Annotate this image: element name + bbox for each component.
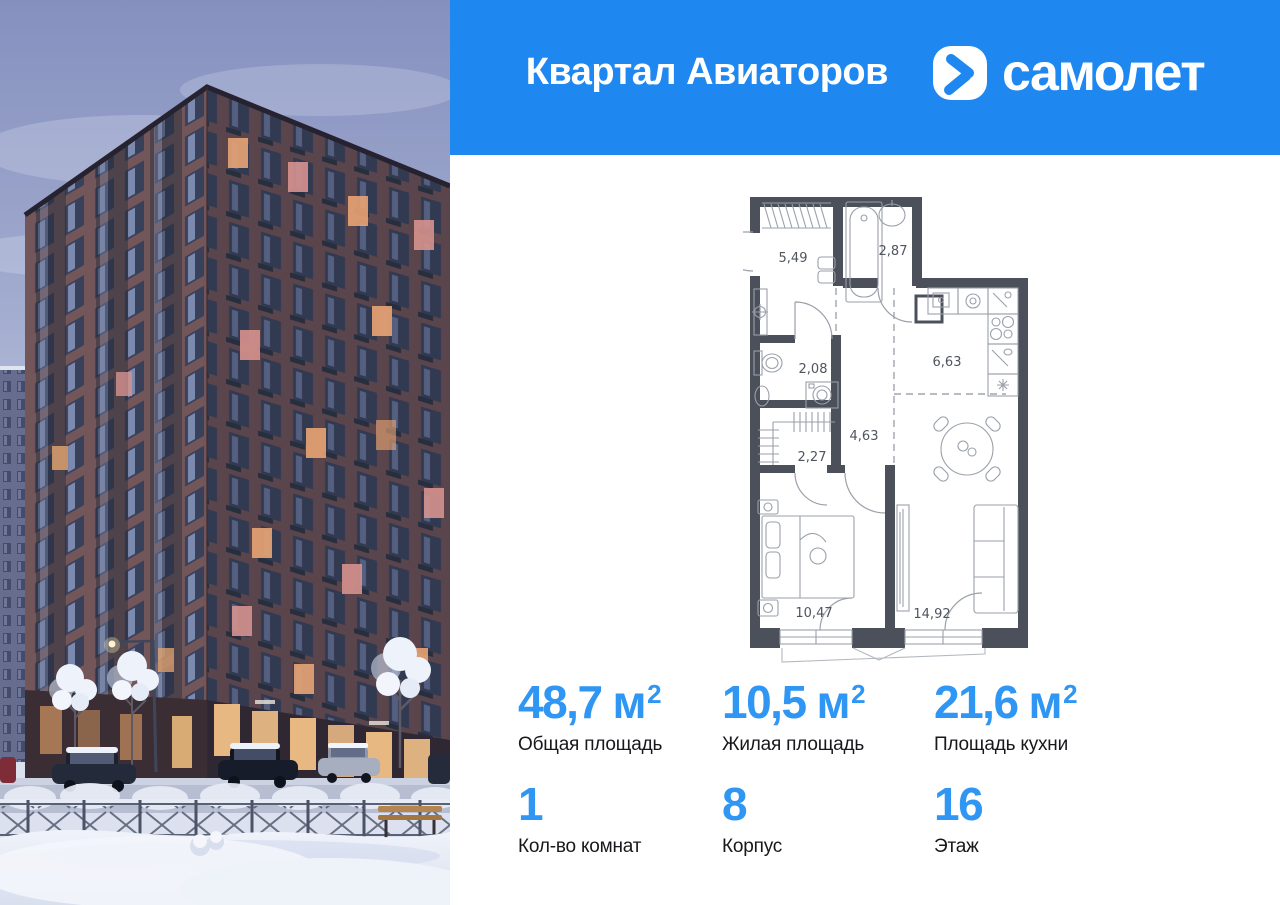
- car-red: [0, 757, 16, 783]
- background-building-left: [0, 366, 27, 762]
- stat-value: 8: [722, 781, 934, 827]
- stat-total-area: 48,7м2 Общая площадь: [518, 679, 722, 756]
- snow-bushes: [4, 783, 450, 810]
- floor-plan: 5,49 2,87 2,08 6,63 4,63 2,27 10,47 14,9…: [743, 188, 1033, 675]
- project-title: Квартал Авиаторов: [526, 51, 888, 94]
- car-4: [428, 754, 450, 784]
- stat-label: Этаж: [934, 836, 1076, 858]
- stat-value: 16: [934, 781, 1076, 827]
- apartment-stats: 48,7м2 Общая площадь 10,5м2 Жилая площад…: [518, 679, 1076, 858]
- stat-label: Кол-во комнат: [518, 836, 722, 858]
- info-pane: Квартал Авиаторов самолет: [450, 0, 1280, 905]
- building-photo-illustration: [0, 0, 450, 905]
- stat-kitchen-area: 21,6м2 Площадь кухни: [934, 679, 1076, 756]
- stat-value: 48,7м2: [518, 679, 722, 725]
- stat-value: 1: [518, 781, 722, 827]
- apartment-details: 5,49 2,87 2,08 6,63 4,63 2,27 10,47 14,9…: [450, 155, 1280, 905]
- stat-value: 21,6м2: [934, 679, 1076, 725]
- stat-label: Корпус: [722, 836, 934, 858]
- stat-label: Площадь кухни: [934, 734, 1076, 756]
- room-label-toilet: 2,08: [799, 362, 828, 377]
- stat-value: 10,5м2: [722, 679, 934, 725]
- room-label-corridor: 4,63: [850, 429, 879, 444]
- brand-name: самолет: [1002, 47, 1204, 99]
- building-photo: [0, 0, 450, 905]
- brand-logo: самолет: [932, 45, 1204, 101]
- listing-card: Квартал Авиаторов самолет: [0, 0, 1280, 905]
- room-label-wardrobe: 2,27: [798, 450, 827, 465]
- stat-label: Жилая площадь: [722, 734, 934, 756]
- room-label-bedroom: 10,47: [795, 606, 832, 621]
- room-label-hallway: 5,49: [779, 251, 808, 266]
- stat-rooms-count: 1 Кол-во комнат: [518, 781, 722, 858]
- stat-building-number: 8 Корпус: [722, 781, 934, 858]
- room-label-bathroom: 2,87: [879, 244, 908, 259]
- stat-label: Общая площадь: [518, 734, 722, 756]
- stat-living-area: 10,5м2 Жилая площадь: [722, 679, 934, 756]
- room-label-living-room: 14,92: [913, 607, 950, 622]
- room-label-kitchen: 6,63: [933, 355, 962, 370]
- stat-floor-number: 16 Этаж: [934, 781, 1076, 858]
- samolet-chevron-icon: [932, 45, 988, 101]
- brand-header: Квартал Авиаторов самолет: [450, 0, 1280, 155]
- foreground-snow: [0, 830, 450, 905]
